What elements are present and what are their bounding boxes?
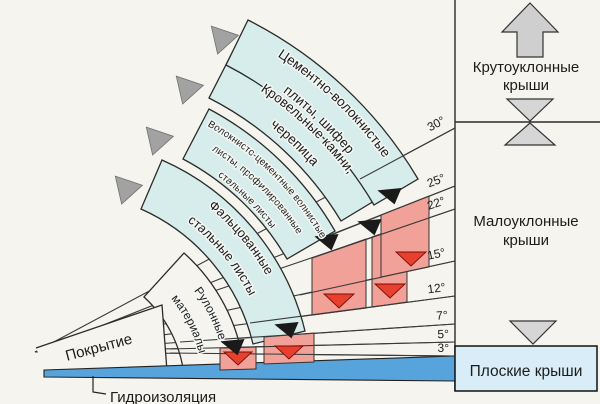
steep-roofs-label-2: крыши <box>503 77 549 94</box>
low-slope-roofs-label-2: крыши <box>503 232 549 249</box>
angle-label-12: 12° <box>427 280 447 296</box>
roof-slope-diagram: Цементно-волокнистые плиты, шифер Кровел… <box>0 0 600 404</box>
angle-label-3: 3° <box>438 341 450 355</box>
angle-label-5: 5° <box>437 327 449 341</box>
flat-roofs-label: Плоские крыши <box>470 363 583 380</box>
diagram-canvas: Цементно-волокнистые плиты, шифер Кровел… <box>0 0 600 404</box>
angle-label-7: 7° <box>436 308 449 323</box>
steep-roofs-label-1: Крутоуклонные <box>473 59 579 76</box>
waterproofing-label: Гидроизоляция <box>110 389 216 404</box>
low-slope-roofs-label-1: Малоуклонные <box>473 213 578 230</box>
